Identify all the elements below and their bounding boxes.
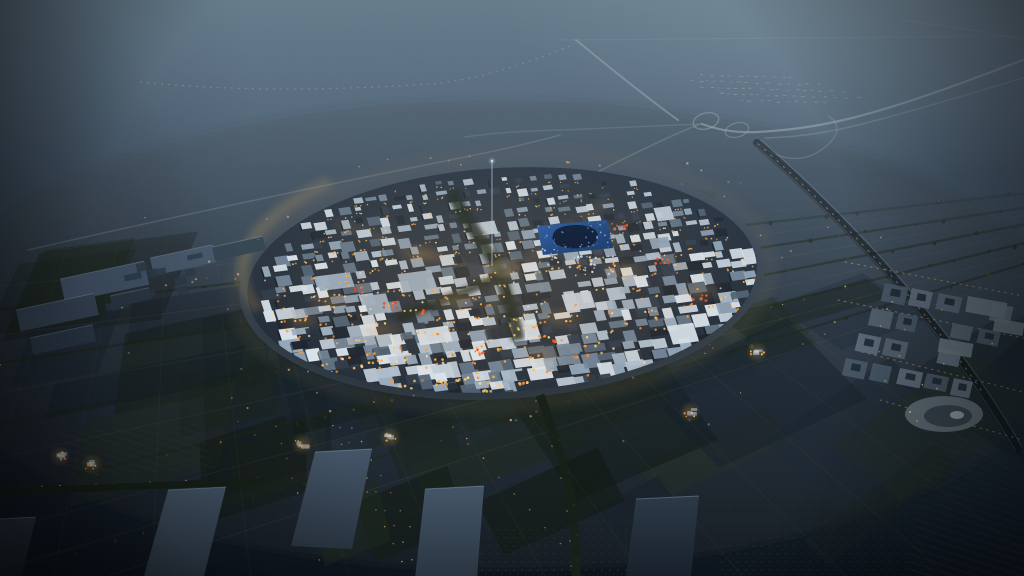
atmosphere [0, 0, 1024, 576]
aerial-render-expo-city [0, 0, 1024, 576]
film-grain [0, 0, 1024, 576]
scene-svg [0, 0, 1024, 576]
